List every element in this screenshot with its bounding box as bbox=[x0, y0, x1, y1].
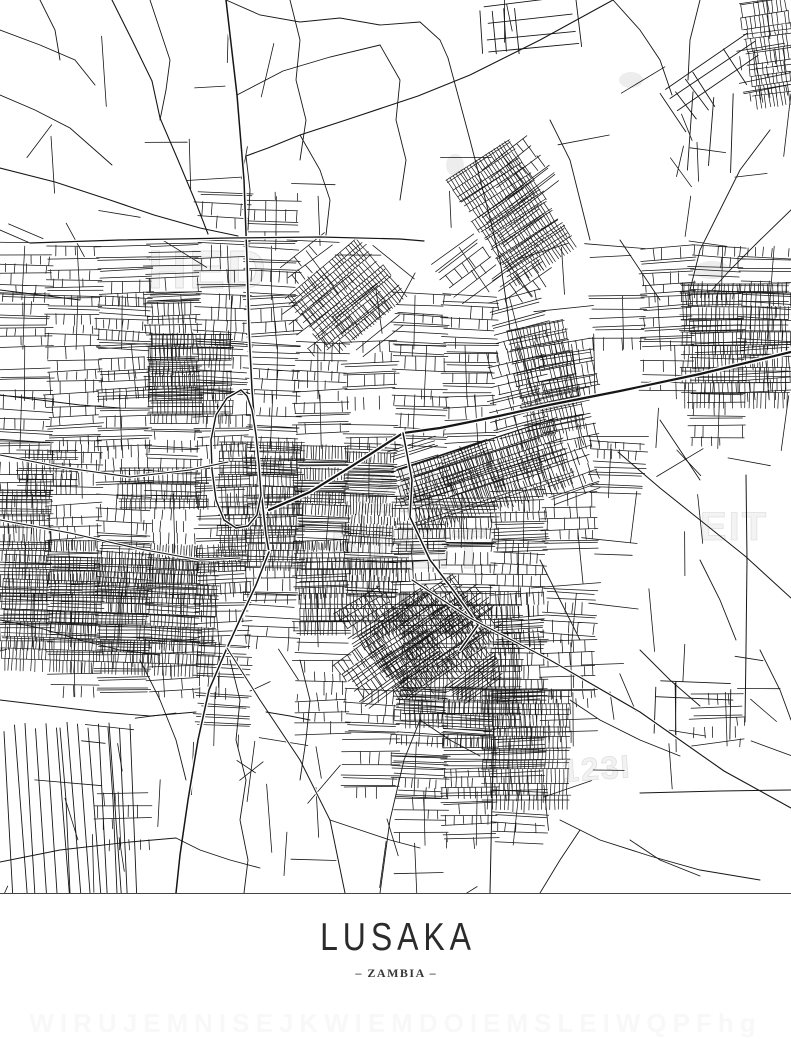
svg-text:2R: 2R bbox=[360, 457, 443, 526]
svg-text:123I: 123I bbox=[560, 748, 633, 789]
svg-text:EIT: EIT bbox=[700, 505, 768, 549]
